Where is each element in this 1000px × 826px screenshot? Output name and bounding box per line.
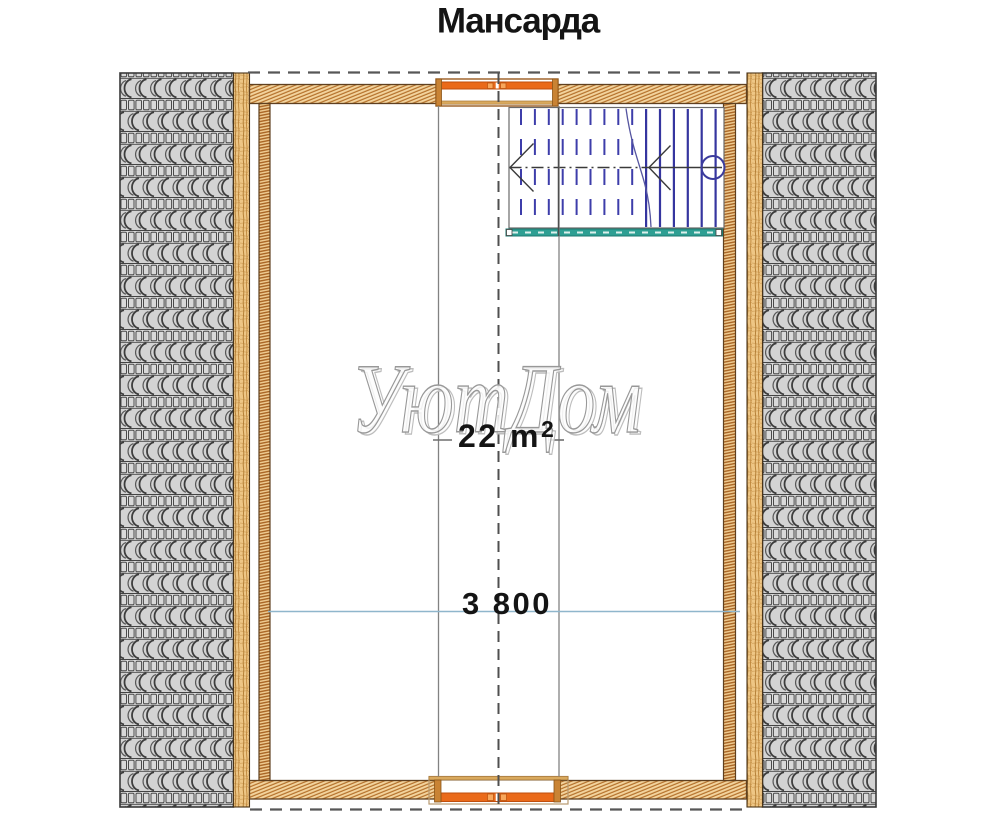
svg-text:22 m: 22 m (458, 418, 541, 454)
svg-text:3 800: 3 800 (462, 586, 552, 621)
svg-text:2: 2 (541, 416, 554, 442)
svg-text:Мансарда: Мансарда (437, 2, 601, 41)
